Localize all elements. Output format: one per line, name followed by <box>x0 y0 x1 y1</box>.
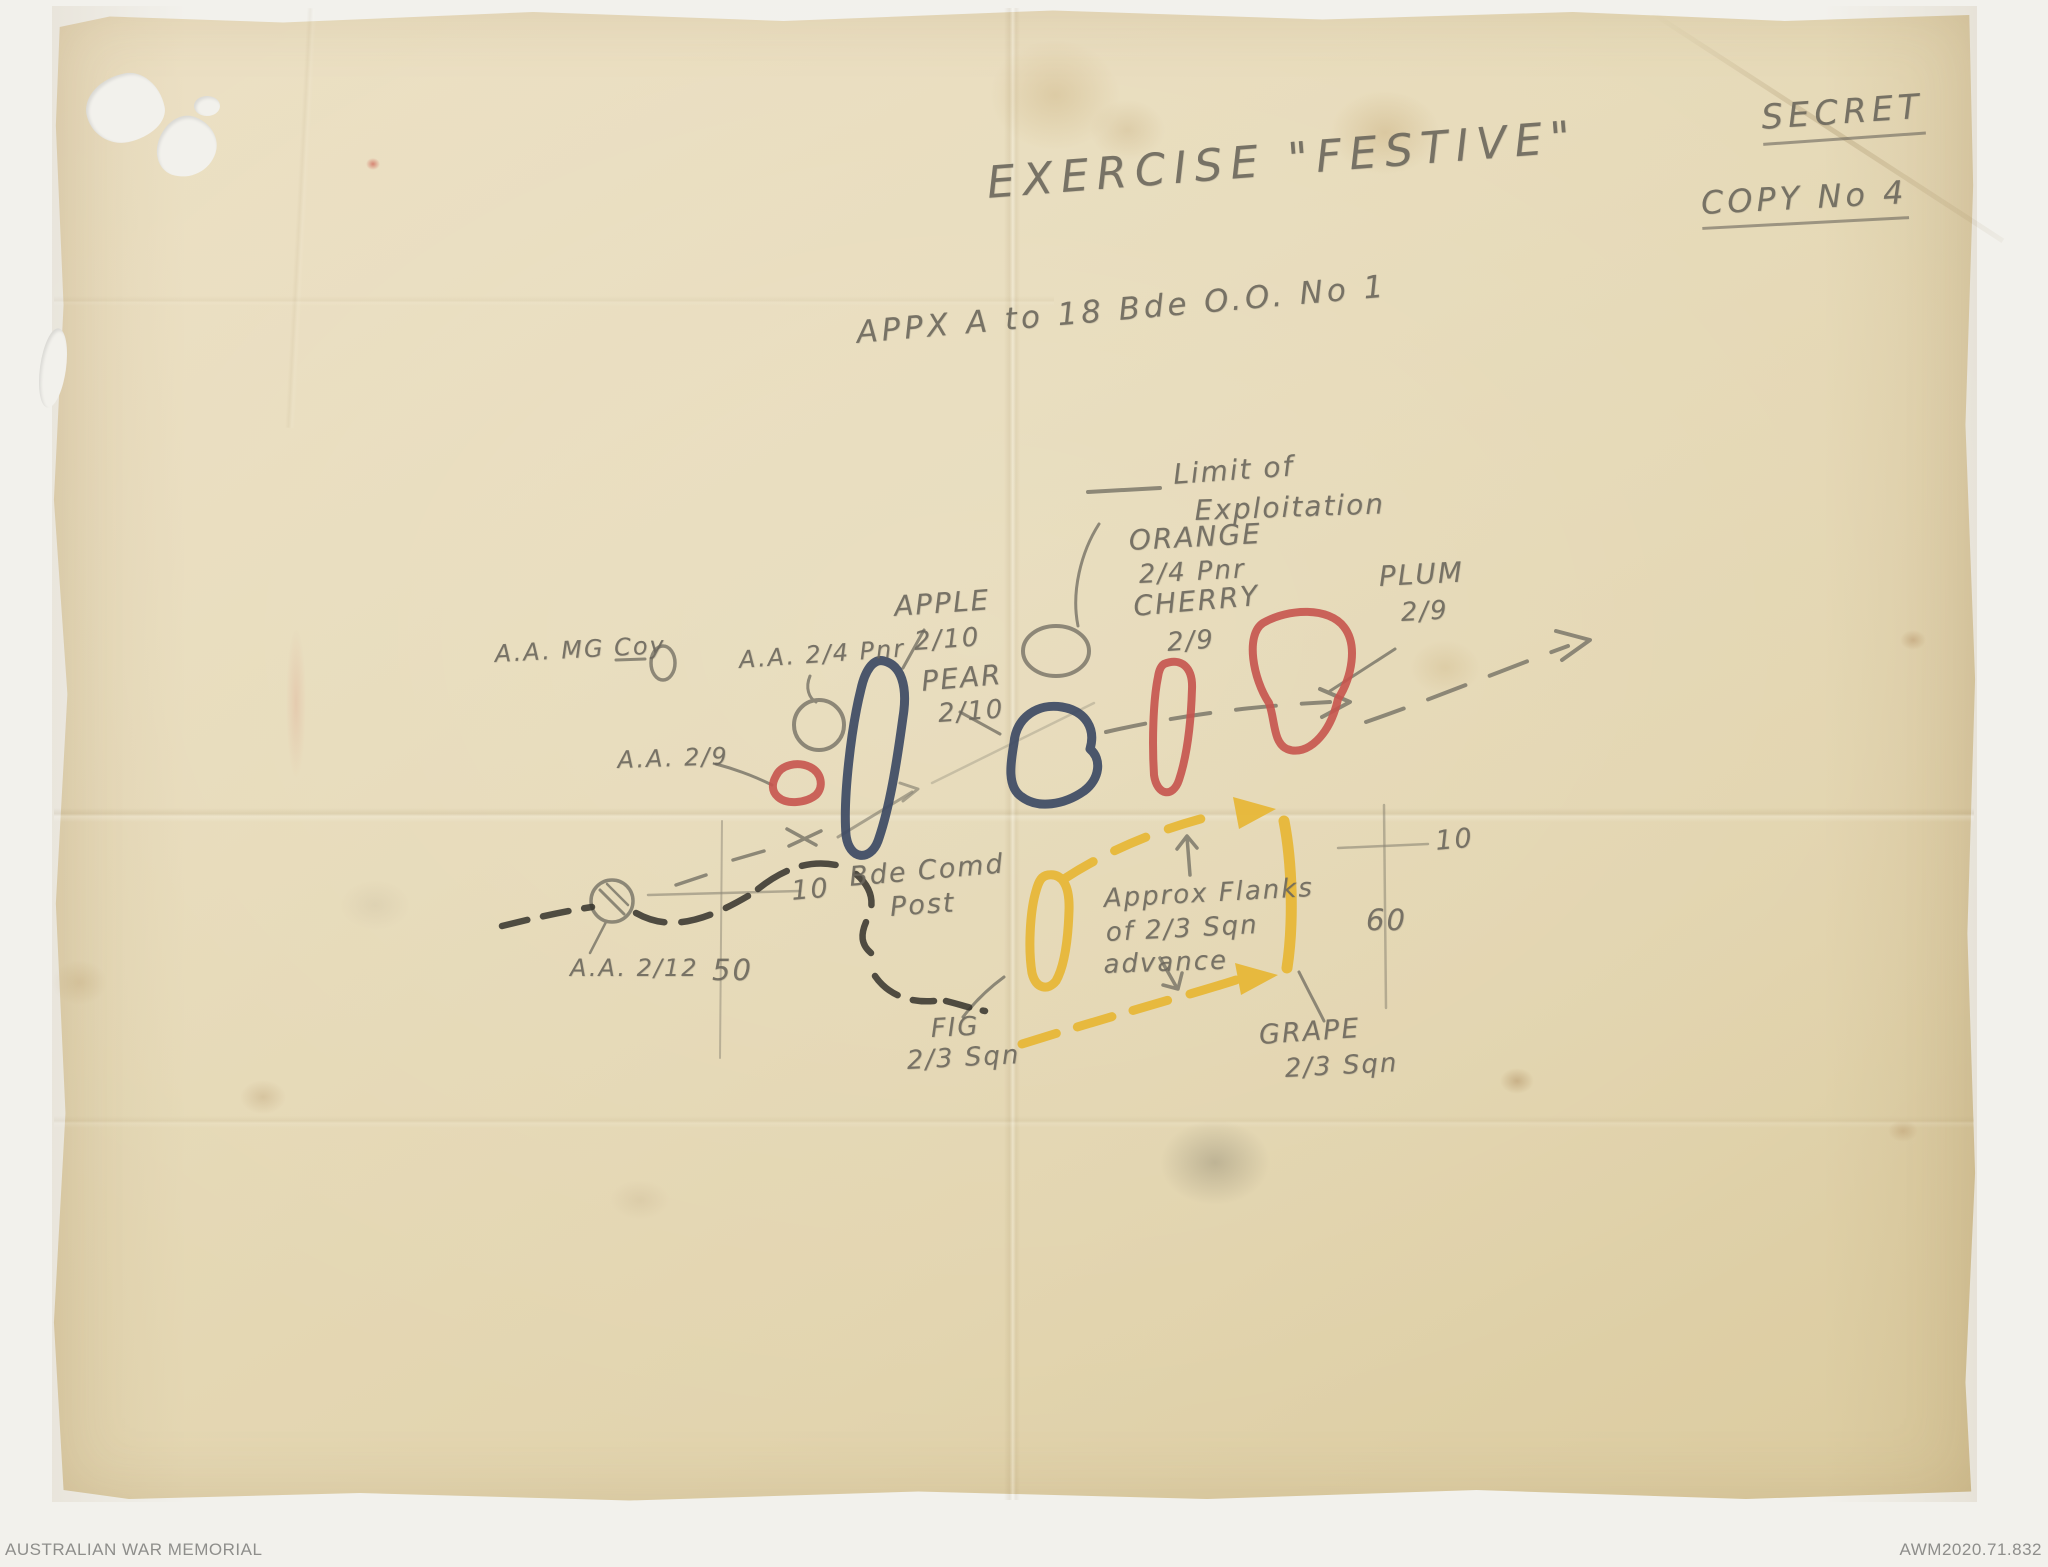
position-aa-2-12-label: A.A. 2/12 <box>570 954 699 982</box>
objective-fig-unit: 2/3 Sqn <box>906 1040 1021 1076</box>
objective-plum-label: PLUM <box>1378 556 1465 593</box>
objective-apple-unit: 2/10 <box>913 622 981 657</box>
archive-reference-label: AWM2020.71.832 <box>1900 1540 2042 1560</box>
flanks-note-line3: advance <box>1103 946 1229 980</box>
objective-grape-unit: 2/3 Sqn <box>1284 1048 1399 1084</box>
west-grid-easting-label: 10 <box>790 873 831 907</box>
paper-sheet <box>52 6 1977 1502</box>
objective-orange-label: ORANGE <box>1128 517 1263 557</box>
objective-pear-unit: 2/10 <box>937 694 1005 729</box>
bde-comd-post-line2: Post <box>889 887 956 922</box>
objective-pear-label: PEAR <box>920 658 1004 698</box>
objective-apple-label: APPLE <box>893 583 991 623</box>
west-grid-northing-label: 50 <box>712 953 753 987</box>
archive-name-label: AUSTRALIAN WAR MEMORIAL <box>5 1540 262 1560</box>
objective-fig-label: FIG <box>930 1011 980 1044</box>
torn-hole <box>194 96 220 116</box>
objective-cherry-unit: 2/9 <box>1166 625 1216 658</box>
scanned-document: SECRET COPY No 4 EXERCISE "FESTIVE" APPX… <box>0 0 2048 1567</box>
east-grid-easting-label: 10 <box>1434 823 1475 857</box>
objective-plum-unit: 2/9 <box>1400 595 1449 627</box>
east-grid-northing-label: 60 <box>1366 903 1407 937</box>
position-aa-2-9-label: A.A. 2/9 <box>617 742 729 774</box>
